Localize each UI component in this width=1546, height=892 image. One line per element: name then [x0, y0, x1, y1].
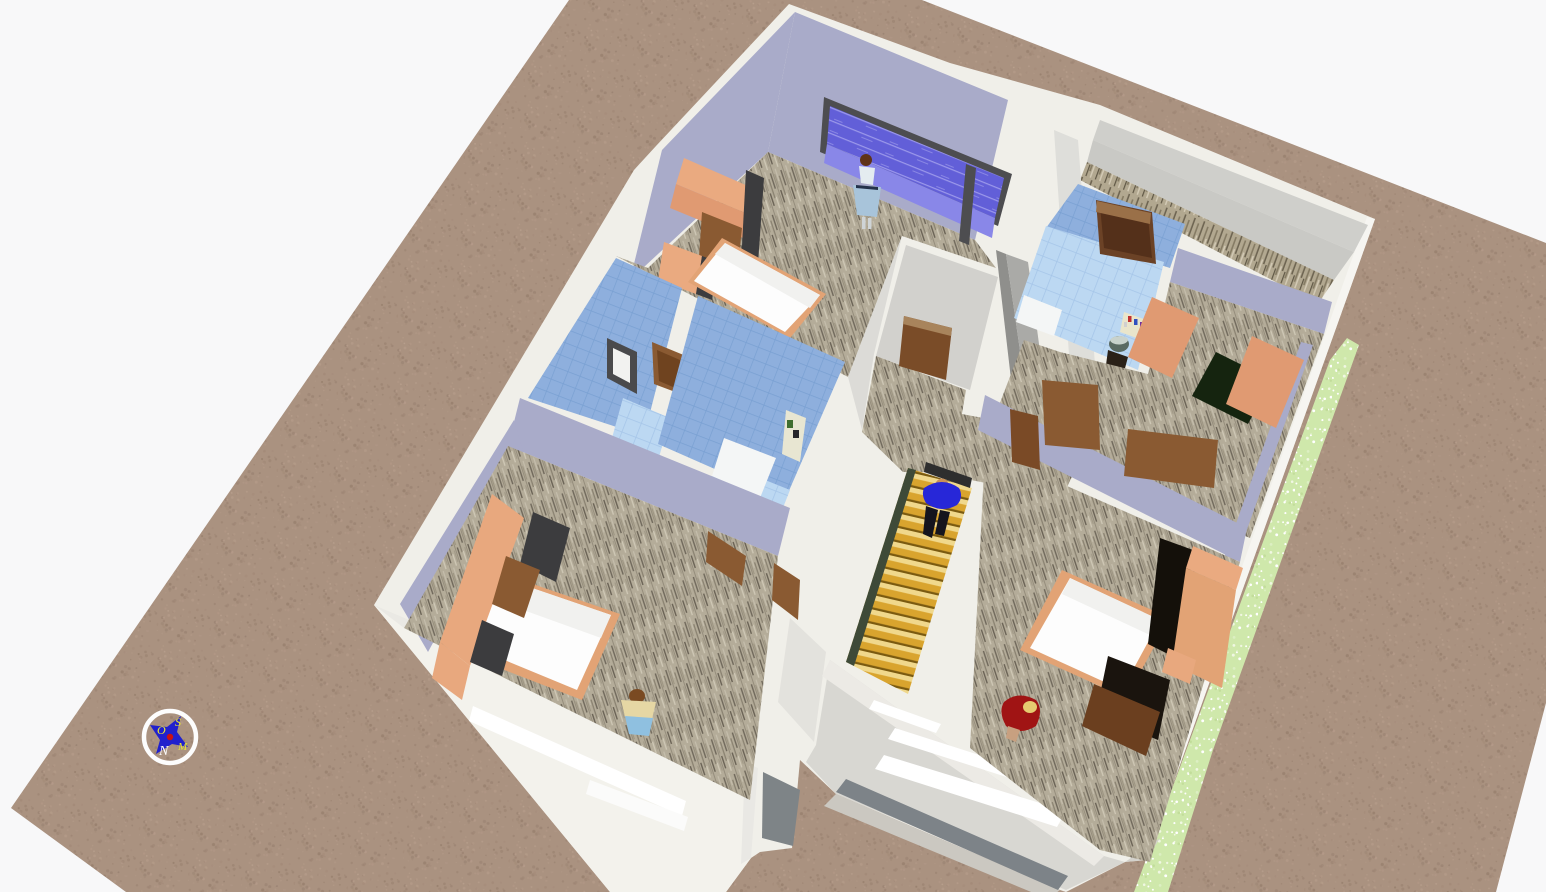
- svg-text:N: N: [158, 744, 169, 759]
- svg-text:S: S: [175, 715, 181, 729]
- svg-text:O: O: [157, 723, 166, 737]
- svg-text:M: M: [177, 741, 188, 753]
